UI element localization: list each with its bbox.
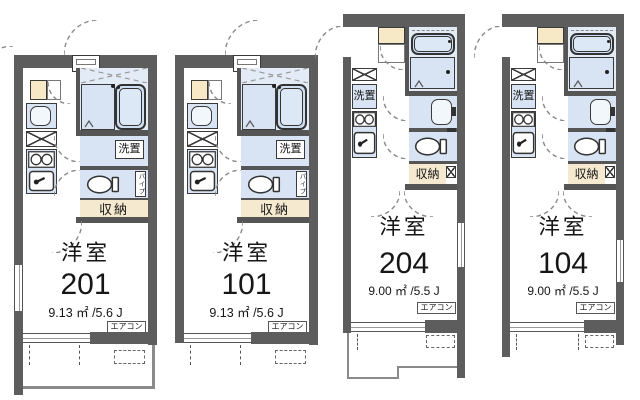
washstand-icon [431, 99, 452, 125]
exterior-wall [502, 14, 624, 27]
exterior-wall [502, 333, 510, 357]
room-type-label: 洋室 [510, 214, 616, 240]
bath-vent-marks [81, 68, 147, 83]
room-area: 9.00 ㎡ /5.5 J [510, 284, 616, 299]
window [510, 322, 584, 332]
door-swing-arc [539, 46, 563, 70]
faucet-dot-icon [605, 70, 609, 74]
partition-wall [237, 217, 309, 223]
washing-machine-box-icon [187, 131, 218, 147]
balcony-line [397, 366, 457, 368]
balcony-line [516, 334, 517, 350]
washstand-icon [30, 106, 51, 126]
bath-vent-marks [242, 68, 308, 83]
door-swing-arc [542, 134, 567, 159]
window [14, 265, 23, 311]
balcony-line [79, 345, 80, 365]
toilet-icon [247, 174, 281, 195]
toilet-icon [86, 174, 120, 195]
corner-mark-icon [245, 120, 255, 128]
washstand-icon [191, 106, 212, 126]
aircon-label: エアコン [576, 302, 615, 314]
window [23, 333, 90, 343]
door-swing-arc [54, 136, 80, 162]
balcony-line [240, 345, 241, 365]
bathtub-icon [573, 36, 611, 52]
toilet-icon [414, 136, 448, 157]
outdoor-unit-dashed-box [275, 350, 306, 364]
exterior-wall [14, 311, 23, 395]
exterior-wall [457, 333, 465, 378]
stove-burners-icon [512, 112, 535, 127]
washing-machine-box-icon [446, 166, 456, 178]
exterior-wall [343, 57, 351, 333]
stove-burners-icon [353, 112, 376, 127]
bath-vent-marks [412, 30, 454, 31]
washing-machine-box-icon [605, 166, 615, 178]
window [457, 223, 465, 267]
bathtub-icon [414, 36, 452, 52]
partition-wall [76, 217, 148, 223]
kitchen-sink-icon [512, 131, 535, 155]
bath-vent-marks [571, 30, 613, 31]
exterior-wall [90, 332, 148, 344]
entrance-step [237, 59, 257, 65]
exterior-wall [14, 55, 23, 265]
door-swing-arc [64, 20, 98, 55]
faucet-dot-icon [111, 84, 115, 88]
pipe-space-label: パイプ [296, 171, 307, 197]
exterior-wall [584, 320, 616, 333]
closet-label: 収納 [409, 164, 446, 184]
exterior-wall [502, 57, 510, 333]
exterior-wall [457, 14, 465, 223]
bathtub-icon [280, 88, 303, 126]
bathtub-icon [119, 88, 142, 126]
balcony-line [347, 377, 399, 379]
stove-burners-icon [189, 151, 216, 168]
exterior-wall [457, 267, 465, 333]
door-swing-arc [215, 170, 241, 196]
partition-wall [405, 184, 457, 190]
kitchen-sink-icon [353, 131, 376, 155]
corner-mark-icon [573, 80, 583, 88]
shoe-shelf [378, 27, 405, 44]
exterior-wall [616, 282, 624, 345]
room-number: 201 [23, 267, 148, 303]
door-swing-arc [542, 96, 567, 121]
room-number: 104 [510, 246, 616, 282]
entrance-step [76, 59, 96, 65]
faucet-dot-icon [446, 70, 450, 74]
stove-burners-icon [28, 151, 55, 168]
faucet-dot-icon [272, 84, 276, 88]
laundry-label: 洗置 [352, 84, 377, 109]
balcony-line [578, 334, 579, 350]
door-swing-arc [209, 82, 231, 104]
balcony-line [347, 333, 349, 379]
window [616, 240, 624, 282]
door-swing-arc [54, 170, 80, 196]
closet-label: 収納 [568, 164, 605, 184]
exterior-wall [425, 320, 457, 333]
door-swing-arc [383, 134, 408, 159]
washing-machine-box-icon [511, 68, 536, 81]
room-area: 9.00 ㎡ /5.5 J [351, 284, 457, 299]
faucet-dot-icon [452, 107, 456, 116]
shoe-shelf [30, 80, 47, 100]
room-area: 9.13 ㎡ /5.6 J [23, 306, 148, 321]
exterior-wall [309, 55, 318, 345]
door-swing-arc [315, 26, 343, 58]
door-swing-arc [225, 20, 259, 55]
kitchen-sink-icon [189, 170, 216, 192]
outdoor-unit-dashed-box [426, 335, 455, 348]
room-type-label: 洋室 [351, 214, 457, 240]
door-swing-arc [474, 26, 502, 58]
drain-dot-icon [117, 86, 120, 89]
washing-machine-box-icon [26, 131, 57, 147]
washstand-icon [590, 99, 611, 125]
exterior-wall [616, 14, 624, 240]
balcony-line [357, 334, 358, 350]
door-swing-arc [0, 46, 13, 92]
laundry-label: 洗置 [511, 84, 536, 109]
drain-dot-icon [607, 40, 610, 43]
balcony-line [190, 345, 191, 365]
aircon-label: エアコン [417, 302, 456, 314]
balcony-line [23, 386, 155, 389]
pipe-space-label: パイプ [135, 171, 146, 197]
door-swing-arc [380, 46, 404, 70]
shoe-shelf [537, 27, 564, 44]
room-type-label: 洋室 [23, 240, 148, 266]
exterior-wall [148, 55, 157, 345]
exterior-wall [175, 55, 184, 343]
exterior-wall [251, 332, 309, 344]
door-swing-arc [48, 82, 70, 104]
partition-wall [564, 184, 616, 190]
room-type-label: 洋室 [184, 240, 309, 266]
outdoor-unit-dashed-box [114, 350, 145, 364]
laundry-label: 洗置 [276, 140, 305, 159]
corner-mark-icon [84, 120, 94, 128]
balcony-line [29, 345, 30, 365]
faucet-dot-icon [611, 107, 615, 116]
exterior-wall [343, 14, 465, 27]
door-swing-arc [383, 96, 408, 121]
room-number: 204 [351, 246, 457, 282]
outdoor-unit-dashed-box [585, 335, 614, 348]
toilet-icon [573, 136, 607, 157]
window [351, 322, 425, 332]
corner-mark-icon [414, 80, 424, 88]
washing-machine-box-icon [352, 68, 377, 81]
laundry-label: 洗置 [115, 140, 144, 159]
door-swing-arc [215, 136, 241, 162]
room-number: 101 [184, 267, 309, 303]
window [184, 333, 251, 343]
shoe-shelf [191, 80, 208, 100]
drain-dot-icon [448, 40, 451, 43]
balcony-line [152, 345, 155, 388]
room-area: 9.13 ㎡ /5.6 J [184, 306, 309, 321]
drain-dot-icon [278, 86, 281, 89]
floor-plan-canvas: 洗置 パイプ 収納 洋室 201 9.13 ㎡ /5.6 J エアコン [0, 0, 640, 400]
kitchen-sink-icon [28, 170, 55, 192]
